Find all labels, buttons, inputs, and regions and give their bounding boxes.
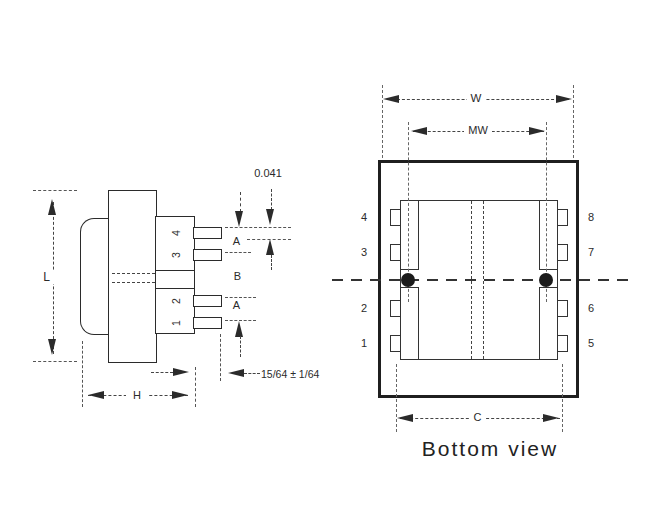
dim-W-arrow-left [383,95,399,103]
dim-W-label: W [467,92,485,105]
thickness-arrow-up-tail [271,255,272,270]
bv-pin-4-label: 4 [357,211,371,223]
dim-H-arrow-right [172,391,188,399]
side-pin-1-label: 1 [170,316,184,330]
bv-pin-2 [390,300,401,317]
side-pin-2 [193,295,222,307]
pin-tip-ext-line [220,334,221,381]
flange-upper-right [539,200,558,270]
dim-L-ext-top [33,190,77,191]
pin-length-arrow-right [173,368,189,376]
bv-pin-8 [557,209,568,226]
thickness-arrow-down-a [235,211,243,227]
flange-lower-right [539,287,558,360]
bv-pin-7-label: 7 [584,246,598,258]
pin-length-tail-right [244,373,260,374]
horizontal-centerline [332,279,628,281]
bv-pin-8-label: 8 [584,211,598,223]
pin4-top-leader [225,227,291,228]
bv-pin-6-label: 6 [584,302,598,314]
dim-MW-arrow-right [529,127,545,135]
pin-length-tail-left [151,372,173,373]
dim-W-arrow-right [556,95,572,103]
bv-pin-5-label: 5 [584,337,598,349]
core-centerline-dash-1 [112,273,155,274]
mounting-hole-left [401,273,415,287]
side-pin-3-label: 3 [170,248,184,262]
core-centerline-dash-2 [112,282,155,283]
dim-H-arrow-left [88,391,104,399]
header-core-line-top [156,270,194,271]
dim-A-bottom-label: A [229,299,244,312]
bv-pin-5 [557,335,568,352]
pin-length-arrow-left [228,369,244,377]
chain-arrow-tail [240,336,241,357]
pin2-leader [225,297,256,298]
side-pin-2-label: 2 [170,294,184,308]
bv-pin-1-label: 1 [357,337,371,349]
transformer-dimension-drawing: 4 3 2 1 L H 15/64 ± 1/64 0.041 [0,0,650,515]
bv-pin-2-label: 2 [357,302,371,314]
dim-MW-label: MW [464,124,492,137]
dim-W-ext-right [573,85,574,158]
side-pin-4-label: 4 [170,226,184,240]
flange-lower-left [400,287,419,360]
dim-C-ext-right [562,364,563,432]
dim-C-arrow-right [543,414,559,422]
dim-L-label: L [38,270,55,284]
bv-pin-6 [557,300,568,317]
side-pin-3 [193,249,222,261]
bv-pin-7 [557,244,568,261]
dim-A-top-label: A [229,235,244,248]
side-pin-4 [193,227,222,239]
bv-pin-3-label: 3 [357,246,371,258]
chain-arrow-up [235,321,243,337]
dim-H-ext-right [195,367,196,407]
bv-pin-4 [390,209,401,226]
thickness-arrow-tail-a [240,192,241,212]
dim-L-arrow-top [48,199,56,215]
thickness-arrow-down-b [266,209,274,225]
pin3-leader [225,252,251,253]
dim-C-arrow-left [397,414,413,422]
flange-upper-left [400,200,419,270]
side-pin-1 [193,317,222,329]
bottom-view-title: Bottom view [408,437,572,461]
dim-pin-thickness-label: 0.041 [247,167,289,180]
bv-pin-1 [390,335,401,352]
dim-H-ext-left [82,341,83,407]
dim-B-label: B [230,270,245,283]
header-core-line-bottom [156,288,194,289]
mounting-hole-right [539,273,553,287]
dim-C-label: C [469,411,486,425]
bv-pin-3 [390,244,401,261]
thickness-arrow-up [266,239,274,255]
dim-L-ext-bottom [33,361,77,362]
dim-pin-length-label: 15/64 ± 1/64 [261,368,325,381]
dim-L-arrow-bottom [48,339,56,355]
dim-H-label: H [126,389,148,402]
dim-MW-arrow-left [411,127,427,135]
side-view-bobbin-flange [108,190,157,363]
thickness-arrow-tail-b [271,189,272,210]
